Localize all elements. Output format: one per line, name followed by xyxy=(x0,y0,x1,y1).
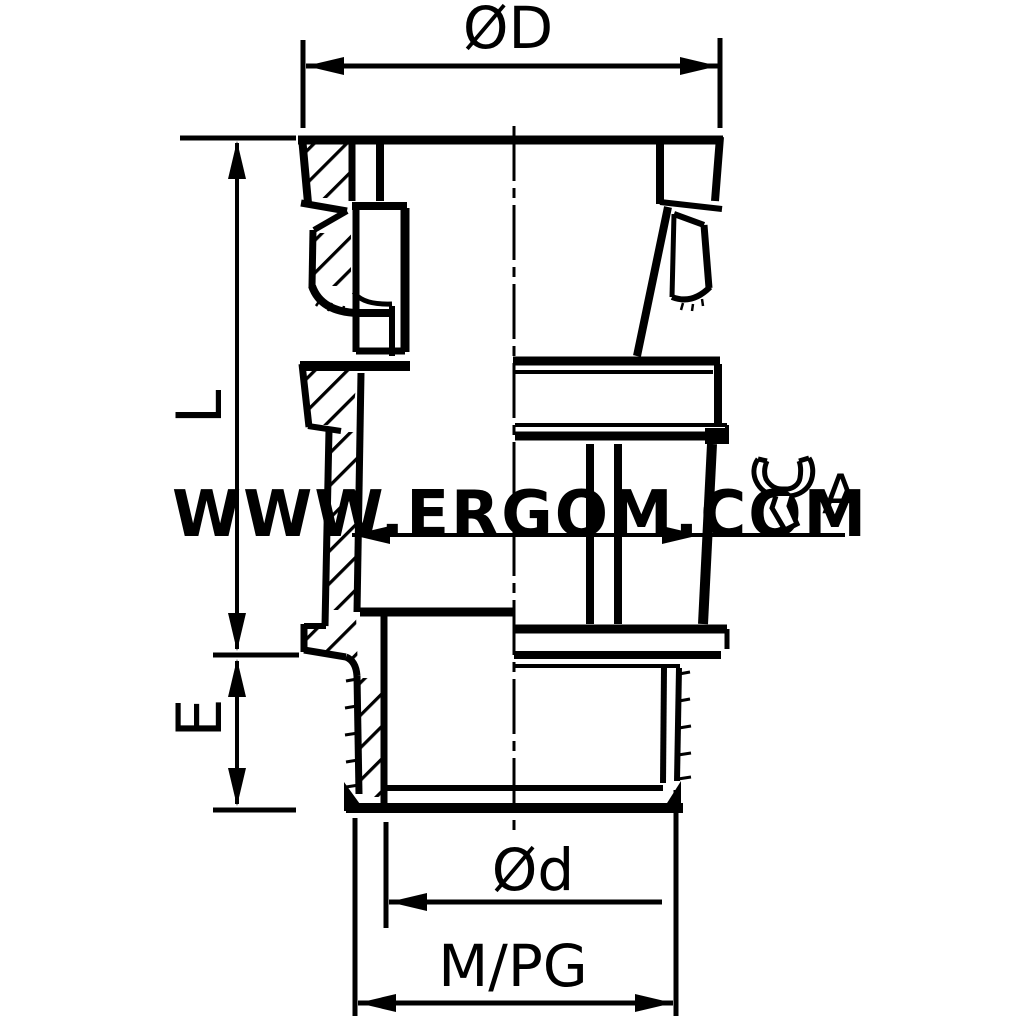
dim-thread-length-E: E xyxy=(163,659,296,810)
label-thread-length-E: E xyxy=(163,698,236,737)
arrowhead-left xyxy=(389,893,427,911)
arrowhead-right xyxy=(635,994,673,1012)
arrowhead-down xyxy=(228,613,246,651)
arrowhead-left xyxy=(358,994,396,1012)
arrowhead-right xyxy=(680,57,718,75)
dim-diameter-top: ØD xyxy=(303,0,720,128)
arrowhead-up xyxy=(228,659,246,697)
label-length-L: L xyxy=(163,389,236,424)
cable-gland-drawing: WWW.ERGOM.COM xyxy=(0,0,1024,1024)
arrowhead-down xyxy=(228,768,246,806)
dim-diameter-bottom: Ød xyxy=(386,822,662,928)
label-diameter-bottom: Ød xyxy=(492,836,574,904)
label-diameter-top: ØD xyxy=(463,0,553,62)
dim-length-L: L xyxy=(163,138,299,655)
arrowhead-up xyxy=(228,141,246,179)
arrowhead-left xyxy=(306,57,344,75)
label-thread-designation: M/PG xyxy=(438,932,588,1000)
label-wrench-size-A: A xyxy=(822,463,859,526)
technical-drawing-page: WWW.ERGOM.COM xyxy=(0,0,1024,1024)
